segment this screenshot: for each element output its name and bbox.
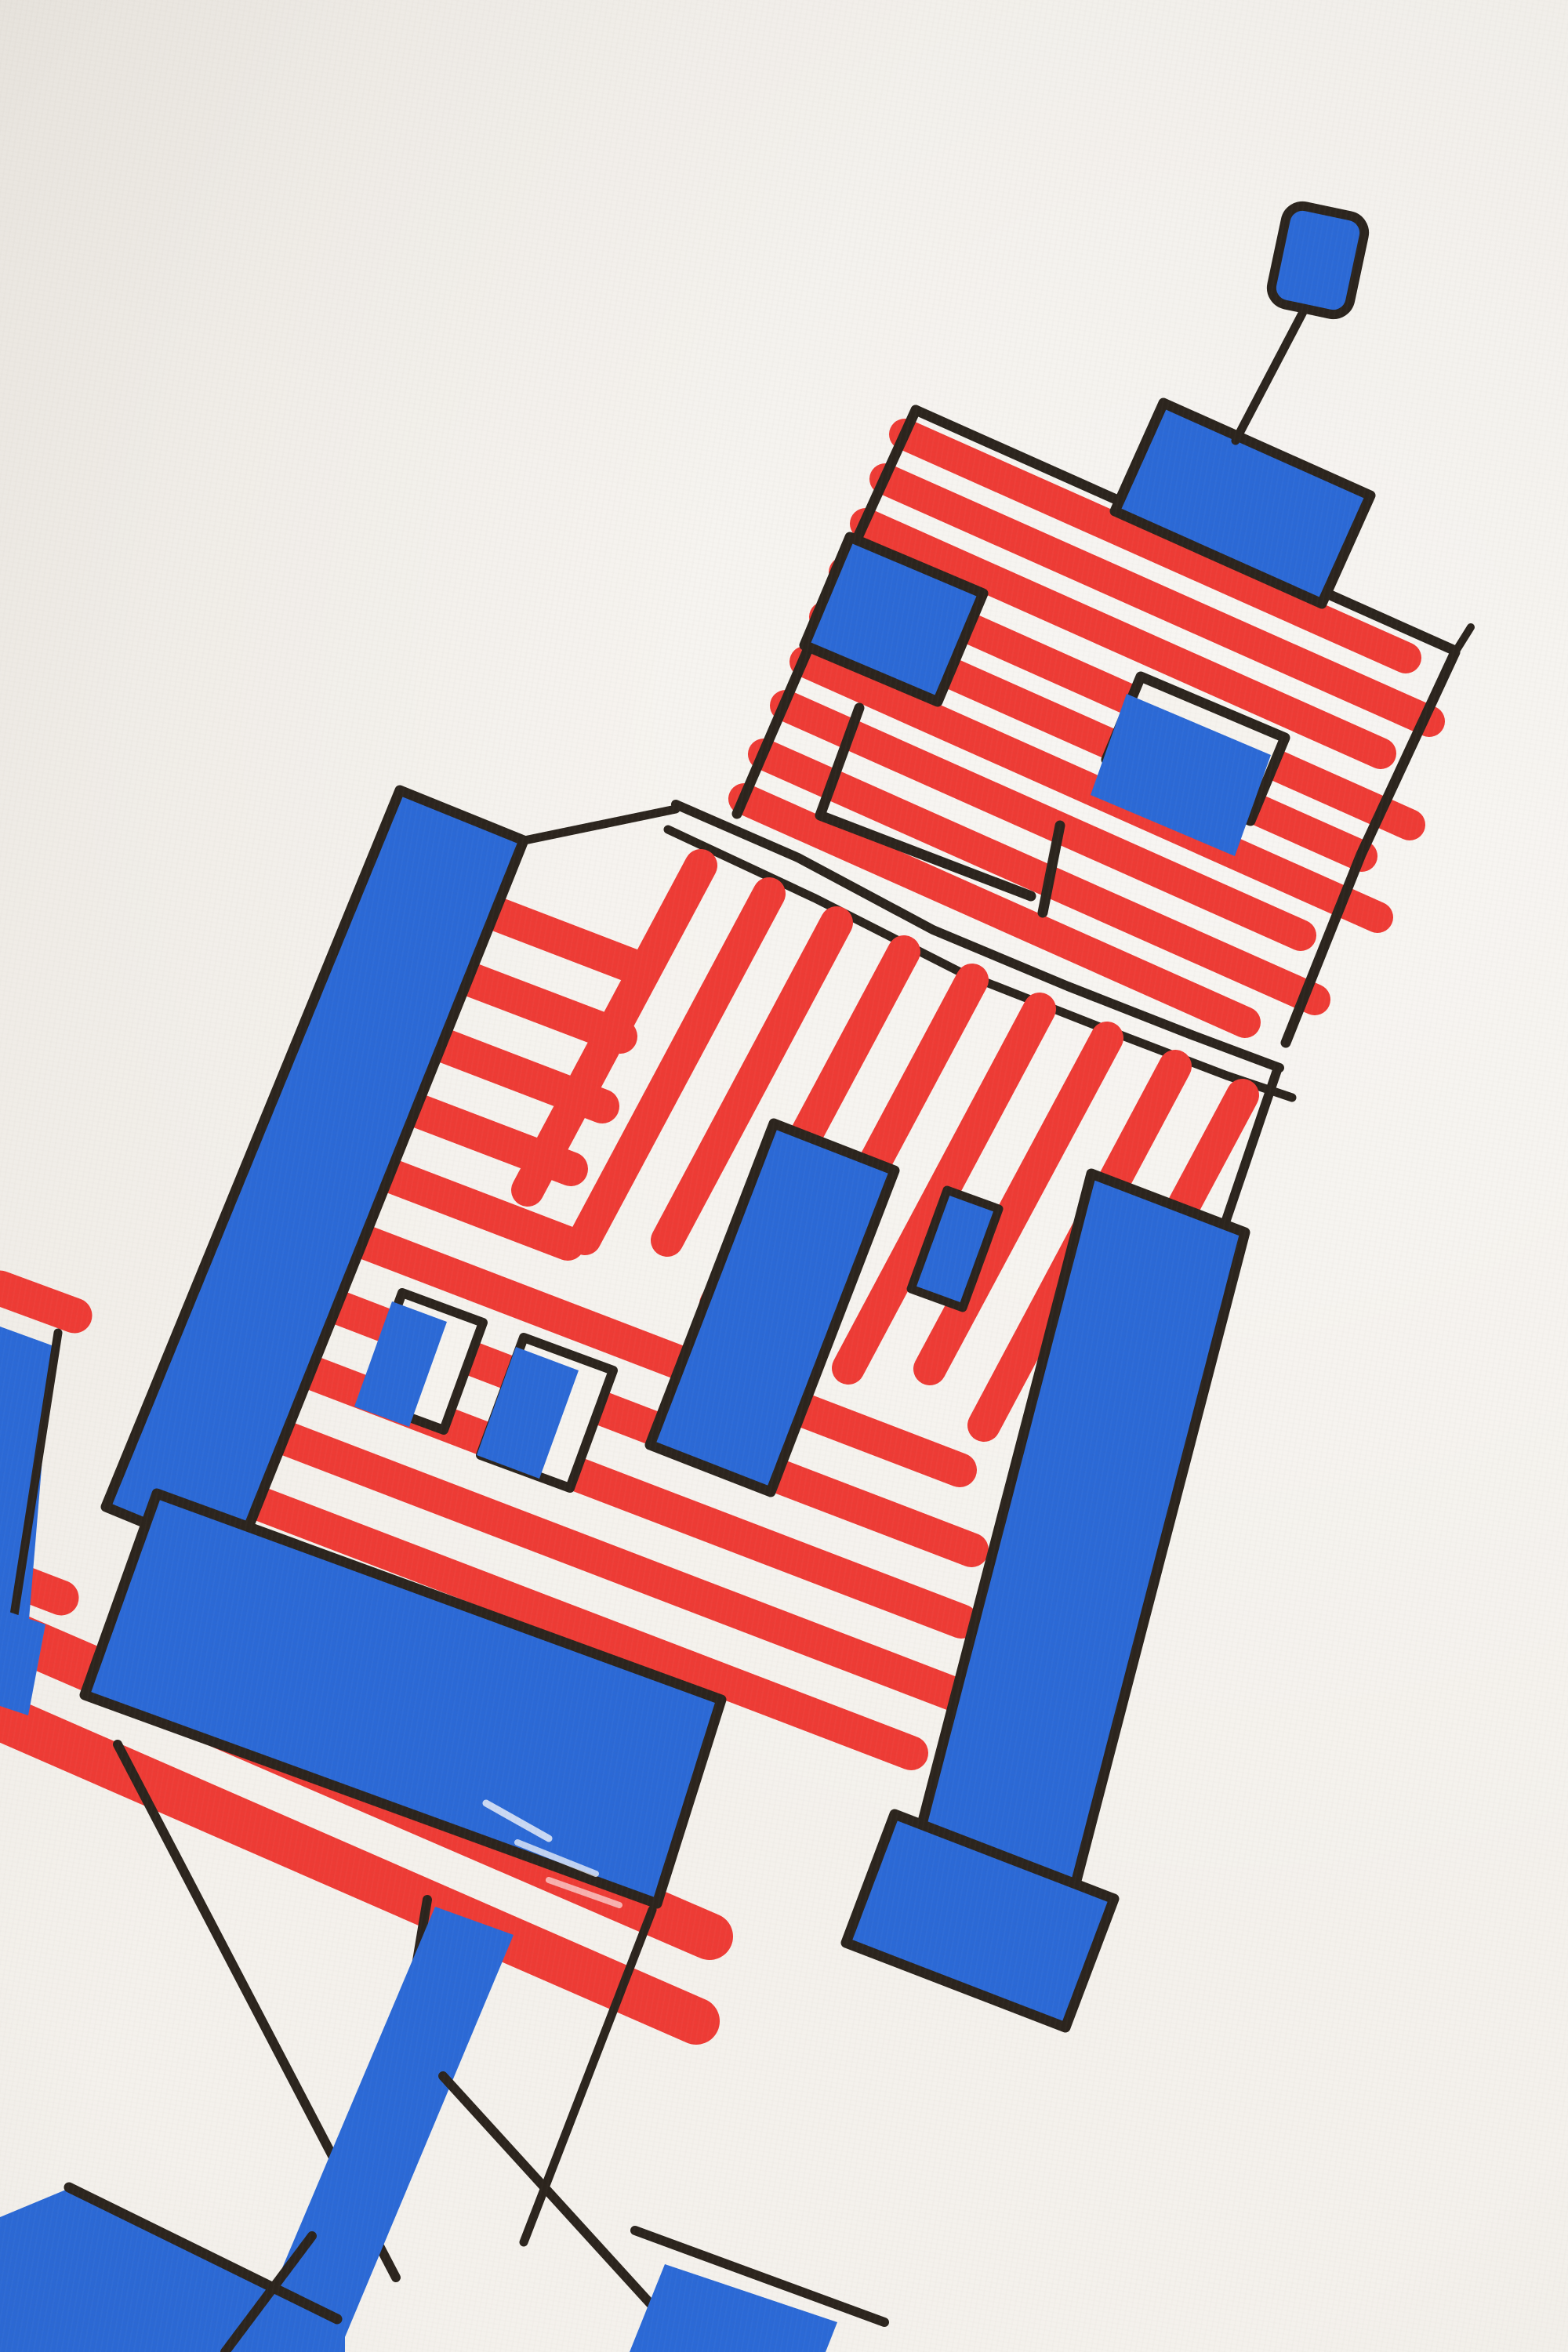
print-canvas [0, 0, 1568, 2352]
stray-stripe-tip-upper [0, 1288, 74, 1316]
right-leg-bar [630, 2264, 837, 2352]
belly-stripe-2 [452, 972, 620, 1036]
left-leg-bar [249, 1907, 514, 2352]
antenna-tip [1269, 203, 1367, 318]
antenna-stem [1236, 312, 1303, 441]
tshirt-photo [0, 0, 1568, 2352]
belly-stripe-1 [477, 906, 638, 968]
right-leg-guide-cross [443, 2076, 660, 2314]
